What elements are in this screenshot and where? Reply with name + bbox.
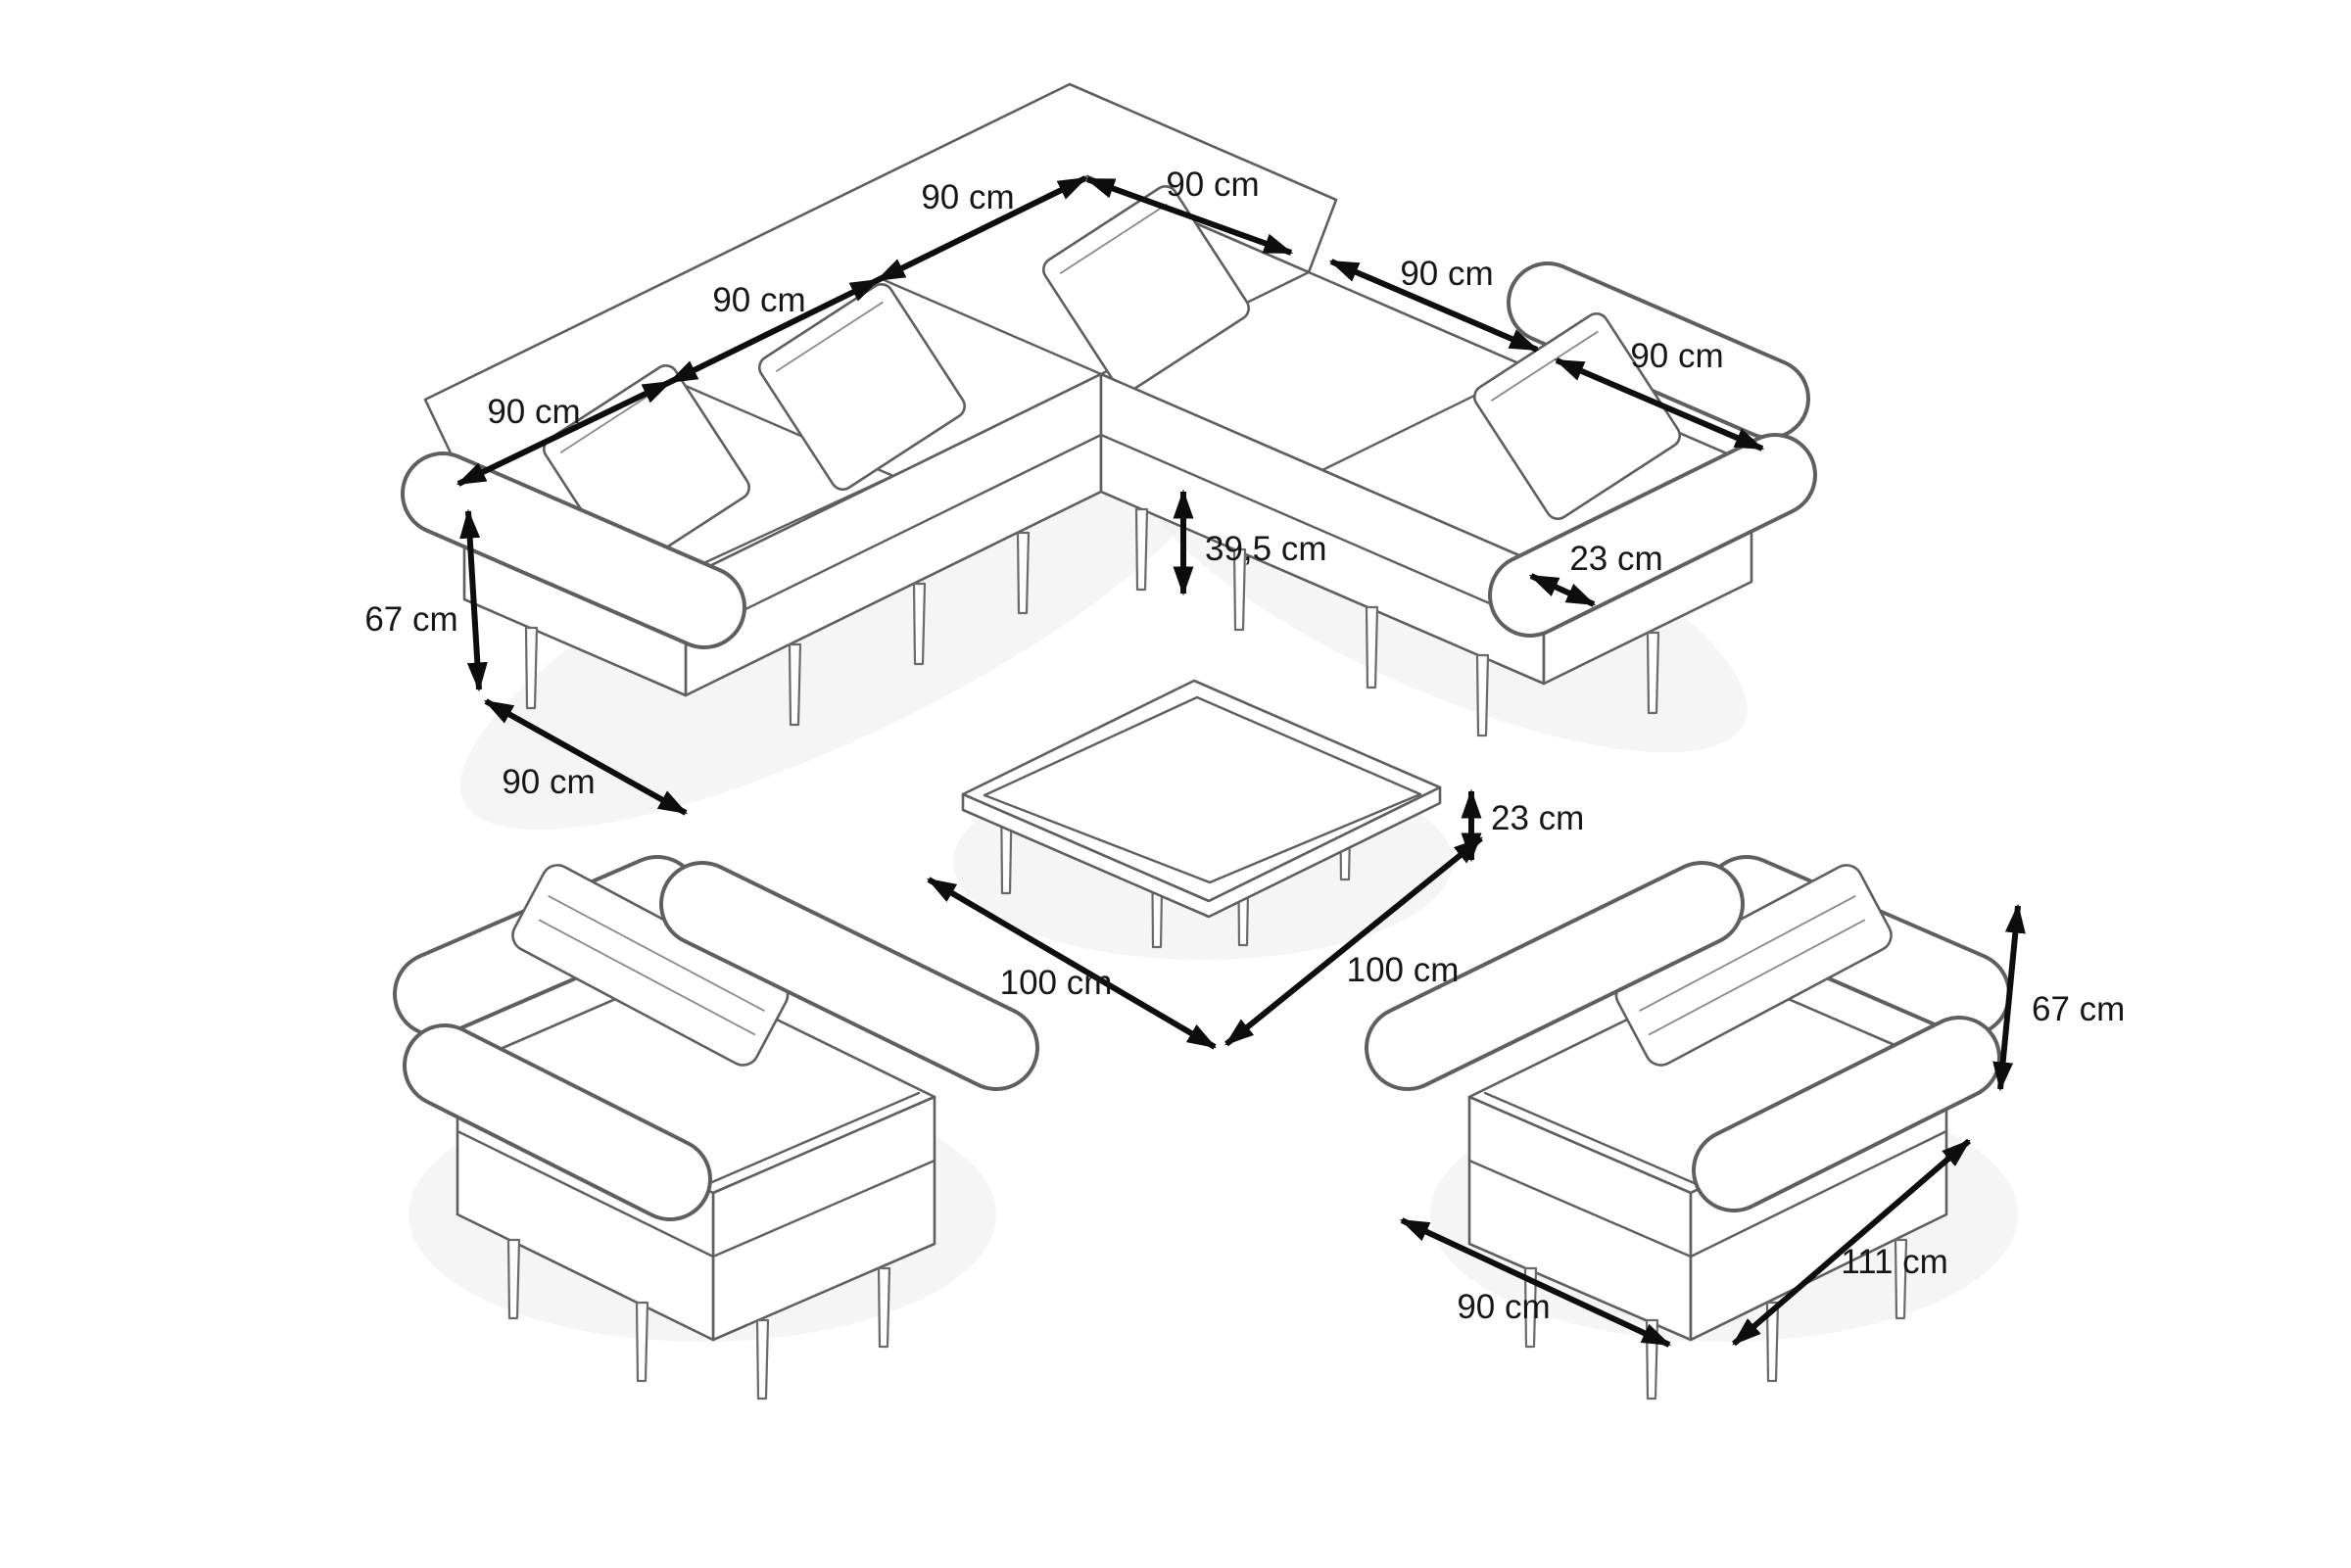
dim-label-sofa-back-right-3: 90 cm	[1630, 337, 1723, 375]
dim-label-armchair-height: 67 cm	[2032, 990, 2125, 1028]
dim-label-sofa-back-left-1: 90 cm	[487, 393, 580, 431]
dim-label-armchair-width: 90 cm	[1457, 1288, 1550, 1326]
dim-label-table-side-right: 100 cm	[1347, 951, 1460, 989]
dim-label-table-side-left: 100 cm	[1000, 964, 1113, 1002]
dim-label-sofa-back-right-2: 90 cm	[1400, 255, 1493, 293]
dim-label-sofa-back-left-2: 90 cm	[712, 281, 805, 319]
dim-label-armchair-depth: 111 cm	[1841, 1243, 1948, 1281]
dim-label-sofa-seat-height: 39,5 cm	[1205, 530, 1327, 568]
armchair-left	[436, 860, 996, 1399]
dim-label-table-height: 23 cm	[1491, 799, 1584, 837]
diagram-canvas: 90 cm 90 cm 90 cm 90 cm 90 cm 90 cm 67 c…	[0, 0, 2351, 1568]
dim-label-sofa-depth: 90 cm	[502, 763, 595, 801]
dim-label-sofa-back-right-1: 90 cm	[1166, 166, 1259, 204]
dim-label-sofa-back-left-3: 90 cm	[921, 178, 1014, 216]
furniture-dimension-diagram: 90 cm 90 cm 90 cm 90 cm 90 cm 90 cm 67 c…	[0, 0, 2351, 1568]
dim-label-sofa-armrest-width: 23 cm	[1569, 540, 1662, 578]
dim-label-sofa-height: 67 cm	[364, 600, 457, 639]
